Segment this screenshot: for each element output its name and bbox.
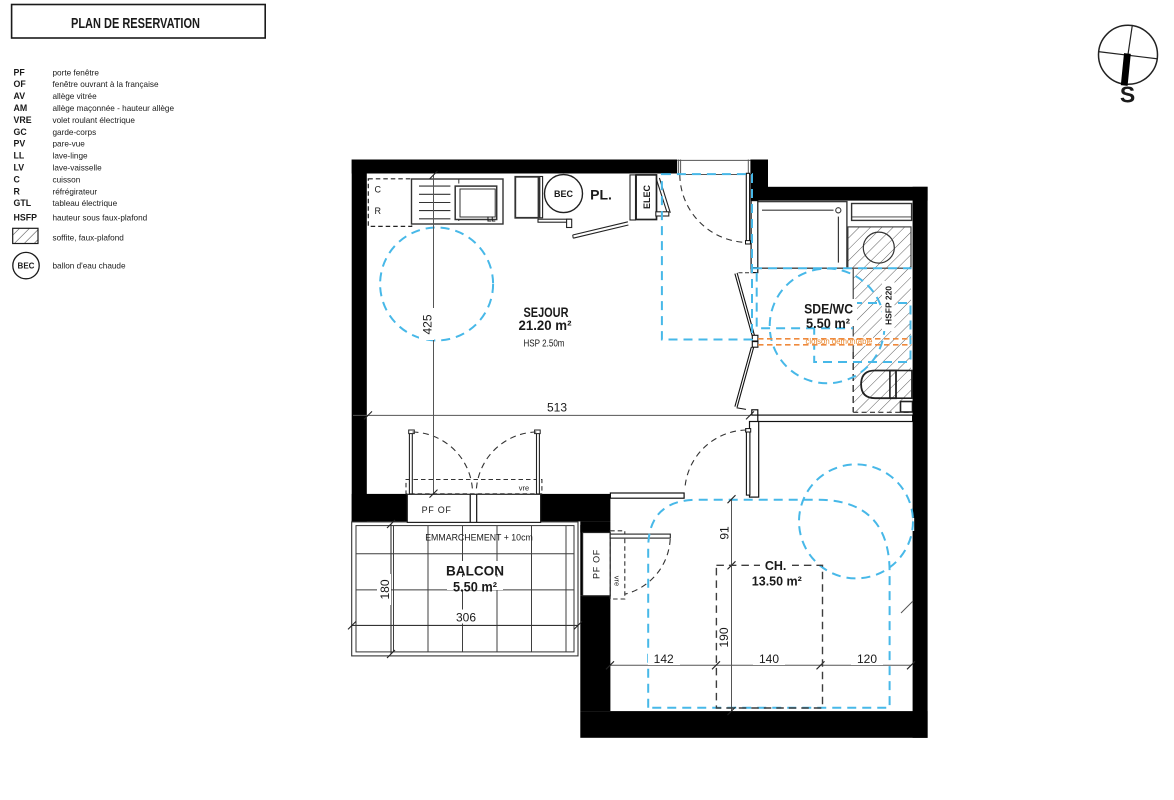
svg-text:425: 425 [421, 314, 435, 334]
svg-text:120: 120 [857, 652, 877, 666]
svg-text:21.20 m²: 21.20 m² [519, 318, 572, 333]
svg-text:91: 91 [718, 526, 732, 540]
svg-text:HSFP: HSFP [14, 213, 38, 223]
svg-text:LL: LL [487, 217, 496, 224]
svg-text:allège maçonnée - hauteur allè: allège maçonnée - hauteur allège [53, 104, 175, 113]
svg-text:5.50 m²: 5.50 m² [806, 316, 850, 331]
svg-text:BEC: BEC [554, 189, 574, 199]
svg-text:BALCON: BALCON [446, 564, 504, 579]
svg-text:PF: PF [14, 67, 26, 77]
svg-text:EMMARCHEMENT + 10cm: EMMARCHEMENT + 10cm [425, 532, 533, 542]
svg-text:190: 190 [717, 627, 731, 647]
svg-text:C: C [14, 174, 21, 184]
svg-text:PV: PV [14, 139, 26, 149]
svg-text:306: 306 [456, 611, 476, 625]
svg-text:ballon d'eau chaude: ballon d'eau chaude [53, 262, 126, 271]
svg-text:C: C [375, 185, 382, 195]
svg-text:AM: AM [14, 103, 28, 113]
svg-text:soffite, faux-plafond: soffite, faux-plafond [53, 233, 125, 242]
svg-text:ELEC: ELEC [642, 185, 652, 210]
svg-text:pare-vue: pare-vue [53, 140, 86, 149]
svg-text:AV: AV [14, 91, 26, 101]
svg-text:13.50 m²: 13.50 m² [752, 574, 802, 588]
svg-text:lave-vaisselle: lave-vaisselle [53, 164, 103, 173]
svg-text:vre: vre [519, 483, 529, 492]
svg-text:R: R [375, 206, 382, 216]
svg-text:volet roulant électrique: volet roulant électrique [53, 116, 136, 125]
svg-text:LL: LL [14, 151, 25, 161]
svg-text:GC: GC [14, 127, 28, 137]
svg-text:cuisson: cuisson [53, 175, 81, 184]
svg-text:allège vitrée: allège vitrée [53, 92, 98, 101]
svg-text:S: S [1120, 82, 1135, 108]
svg-text:R: R [14, 186, 21, 196]
svg-text:vre: vre [613, 576, 622, 586]
svg-text:PF OF: PF OF [591, 549, 601, 579]
svg-text:5.50 m²: 5.50 m² [453, 580, 497, 595]
svg-text:VRE: VRE [14, 115, 32, 125]
svg-text:142: 142 [654, 652, 674, 666]
svg-text:OF: OF [14, 79, 27, 89]
svg-text:HSP 2.50m: HSP 2.50m [524, 339, 565, 350]
svg-text:140: 140 [759, 652, 779, 666]
svg-text:PL.: PL. [590, 187, 612, 203]
svg-text:porte fenêtre: porte fenêtre [53, 68, 100, 77]
svg-text:513: 513 [547, 401, 567, 415]
svg-text:garde-corps: garde-corps [53, 128, 97, 137]
svg-text:PF OF: PF OF [422, 505, 452, 515]
svg-text:hauteur sous faux-plafond: hauteur sous faux-plafond [53, 214, 148, 223]
svg-text:réfrégirateur: réfrégirateur [53, 187, 98, 196]
svg-text:fenêtre ouvrant à la française: fenêtre ouvrant à la française [53, 80, 159, 89]
svg-text:BEC: BEC [18, 262, 35, 271]
svg-text:lave-linge: lave-linge [53, 152, 88, 161]
svg-text:LV: LV [14, 163, 25, 173]
svg-text:cloison démontable: cloison démontable [806, 337, 874, 346]
svg-text:tableau électrique: tableau électrique [53, 199, 118, 208]
svg-text:PLAN DE RESERVATION: PLAN DE RESERVATION [71, 15, 200, 32]
svg-text:HSFP 220: HSFP 220 [883, 286, 893, 325]
svg-text:GTL: GTL [14, 198, 32, 208]
svg-text:180: 180 [378, 579, 392, 599]
svg-text:CH.: CH. [765, 559, 787, 573]
svg-text:SDE/WC: SDE/WC [804, 302, 853, 317]
